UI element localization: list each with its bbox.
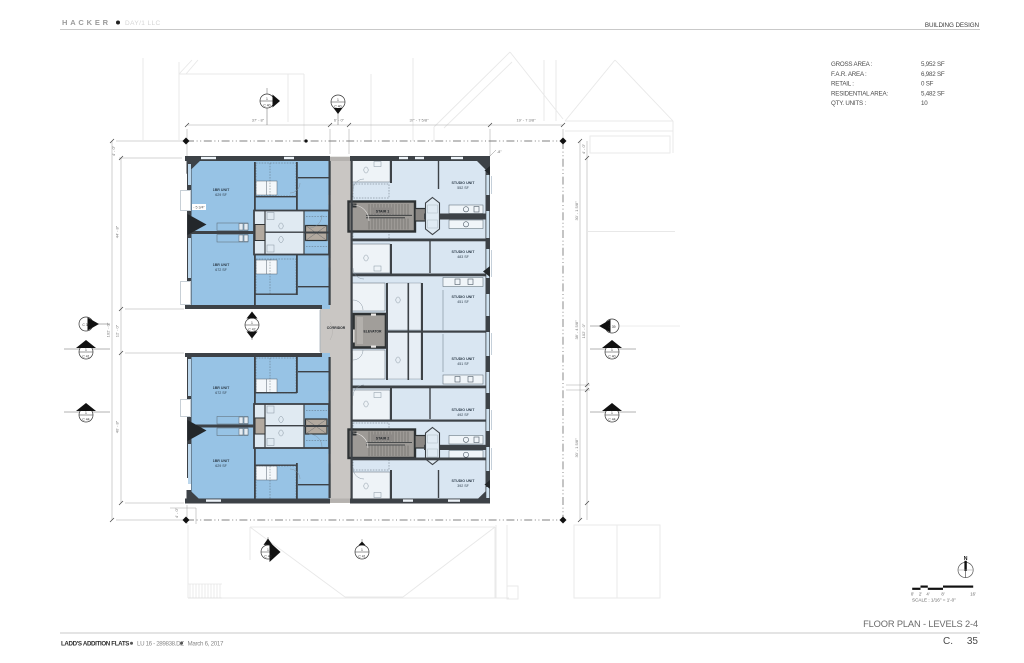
svg-text:12' - 0": 12' - 0" (115, 324, 120, 337)
svg-text:C 39: C 39 (608, 325, 615, 329)
svg-text:-8": -8" (497, 150, 502, 154)
svg-text:552 SF: 552 SF (457, 186, 469, 190)
svg-text:1: 1 (337, 98, 339, 102)
svg-text:0 SF: 0 SF (921, 81, 934, 88)
svg-text:492 SF: 492 SF (457, 413, 469, 417)
svg-text:STUDIO UNIT: STUDIO UNIT (452, 479, 476, 483)
svg-text:30' - 1 5/8": 30' - 1 5/8" (574, 201, 579, 221)
svg-text:DAY/1 LLC: DAY/1 LLC (125, 20, 161, 27)
svg-text:STUDIO UNIT: STUDIO UNIT (452, 181, 476, 185)
svg-text:102' - 0": 102' - 0" (581, 323, 586, 338)
svg-text:6,982 SF: 6,982 SF (921, 71, 945, 78)
svg-text:C 39: C 39 (82, 323, 89, 327)
svg-text:STUDIO UNIT: STUDIO UNIT (452, 408, 476, 412)
svg-text:HACKER: HACKER (62, 18, 111, 27)
svg-text:C 41: C 41 (82, 354, 89, 358)
svg-text:40' - 8": 40' - 8" (115, 420, 120, 433)
svg-text:5,952 SF: 5,952 SF (921, 61, 945, 68)
svg-text:1: 1 (611, 348, 613, 352)
svg-text:C 40: C 40 (334, 104, 341, 108)
svg-text:35: 35 (967, 636, 979, 647)
svg-text:STUDIO UNIT: STUDIO UNIT (452, 295, 476, 299)
svg-text:- 5 3/4": - 5 3/4" (193, 206, 205, 210)
svg-text:STUDIO UNIT: STUDIO UNIT (452, 250, 476, 254)
svg-text:C 40: C 40 (608, 354, 615, 358)
svg-text:1: 1 (611, 411, 613, 415)
svg-text:QTY. UNITS :: QTY. UNITS : (831, 100, 866, 107)
svg-text:5,482 SF: 5,482 SF (921, 90, 945, 97)
svg-text:GROSS AREA :: GROSS AREA : (831, 61, 873, 68)
svg-text:LADD'S ADDITION FLATS: LADD'S ADDITION FLATS (61, 641, 129, 648)
svg-text:C 44: C 44 (608, 417, 615, 421)
svg-text:C 43: C 43 (264, 554, 271, 558)
svg-text:RESIDENTIAL AREA:: RESIDENTIAL AREA: (831, 90, 888, 97)
svg-text:392 SF: 392 SF (457, 484, 469, 488)
svg-text:102' - 0": 102' - 0" (106, 322, 111, 337)
svg-text:8': 8' (941, 592, 944, 597)
svg-text:37' - 8": 37' - 8" (252, 118, 265, 123)
svg-text:1: 1 (85, 348, 87, 352)
svg-text:March 6, 2017: March 6, 2017 (188, 641, 225, 648)
svg-text:1: 1 (251, 321, 253, 325)
svg-text:1: 1 (361, 548, 363, 552)
svg-text:629 SF: 629 SF (215, 464, 227, 468)
svg-text:ELEVATOR: ELEVATOR (364, 330, 382, 334)
svg-text:N: N (964, 556, 968, 562)
svg-text:1: 1 (85, 411, 87, 415)
svg-text:37' - 7 5/8": 37' - 7 5/8" (409, 118, 429, 123)
svg-text:4' - 0": 4' - 0" (111, 145, 116, 156)
svg-text:SCALE : 1/16" = 1'-0": SCALE : 1/16" = 1'-0" (912, 598, 956, 603)
svg-text:1BR UNIT: 1BR UNIT (213, 386, 230, 390)
svg-text:4' - 0": 4' - 0" (174, 507, 179, 518)
svg-text:STAIR 2: STAIR 2 (376, 437, 390, 441)
svg-text:38' - 4 5/8": 38' - 4 5/8" (574, 320, 579, 340)
svg-text:C 40: C 40 (263, 103, 270, 107)
svg-text:0': 0' (911, 592, 914, 597)
svg-text:C 44: C 44 (82, 417, 89, 421)
svg-text:C 42: C 42 (248, 327, 255, 331)
svg-text:CORRIDOR: CORRIDOR (327, 326, 346, 330)
svg-text:672 SF: 672 SF (215, 391, 227, 395)
svg-text:1: 1 (267, 548, 269, 552)
svg-text:483 SF: 483 SF (457, 255, 469, 259)
svg-text:2': 2' (919, 592, 922, 597)
svg-text:629 SF: 629 SF (215, 193, 227, 197)
svg-text:C.: C. (943, 636, 953, 647)
svg-text:RETAIL :: RETAIL : (831, 81, 854, 88)
svg-text:C 41: C 41 (358, 554, 365, 558)
svg-text:44' - 8": 44' - 8" (115, 225, 120, 238)
svg-text:1BR UNIT: 1BR UNIT (213, 459, 230, 463)
svg-text:STAIR 1: STAIR 1 (376, 210, 390, 214)
svg-text:F.A.R. AREA :: F.A.R. AREA : (831, 71, 867, 78)
svg-text:30' - 1 5/8": 30' - 1 5/8" (574, 438, 579, 458)
svg-text:STUDIO UNIT: STUDIO UNIT (452, 357, 476, 361)
svg-text:BUILDING DESIGN: BUILDING DESIGN (925, 22, 980, 29)
svg-text:1BR UNIT: 1BR UNIT (213, 188, 230, 192)
svg-text:451 SF: 451 SF (457, 362, 469, 366)
svg-text:1BR UNIT: 1BR UNIT (213, 263, 230, 267)
svg-text:4' - 0": 4' - 0" (581, 143, 586, 154)
svg-text:4': 4' (926, 592, 929, 597)
svg-text:LU 16 - 289838.DZ: LU 16 - 289838.DZ (137, 641, 184, 648)
svg-text:672 SF: 672 SF (215, 268, 227, 272)
svg-text:451 SF: 451 SF (457, 300, 469, 304)
svg-text:FLOOR PLAN - LEVELS 2-4: FLOOR PLAN - LEVELS 2-4 (863, 619, 978, 629)
svg-text:10: 10 (921, 100, 928, 107)
svg-text:1: 1 (266, 97, 268, 101)
svg-text:16': 16' (970, 592, 976, 597)
svg-text:19' - 7 3/8": 19' - 7 3/8" (516, 118, 536, 123)
svg-text:6' - 0": 6' - 0" (334, 118, 345, 123)
